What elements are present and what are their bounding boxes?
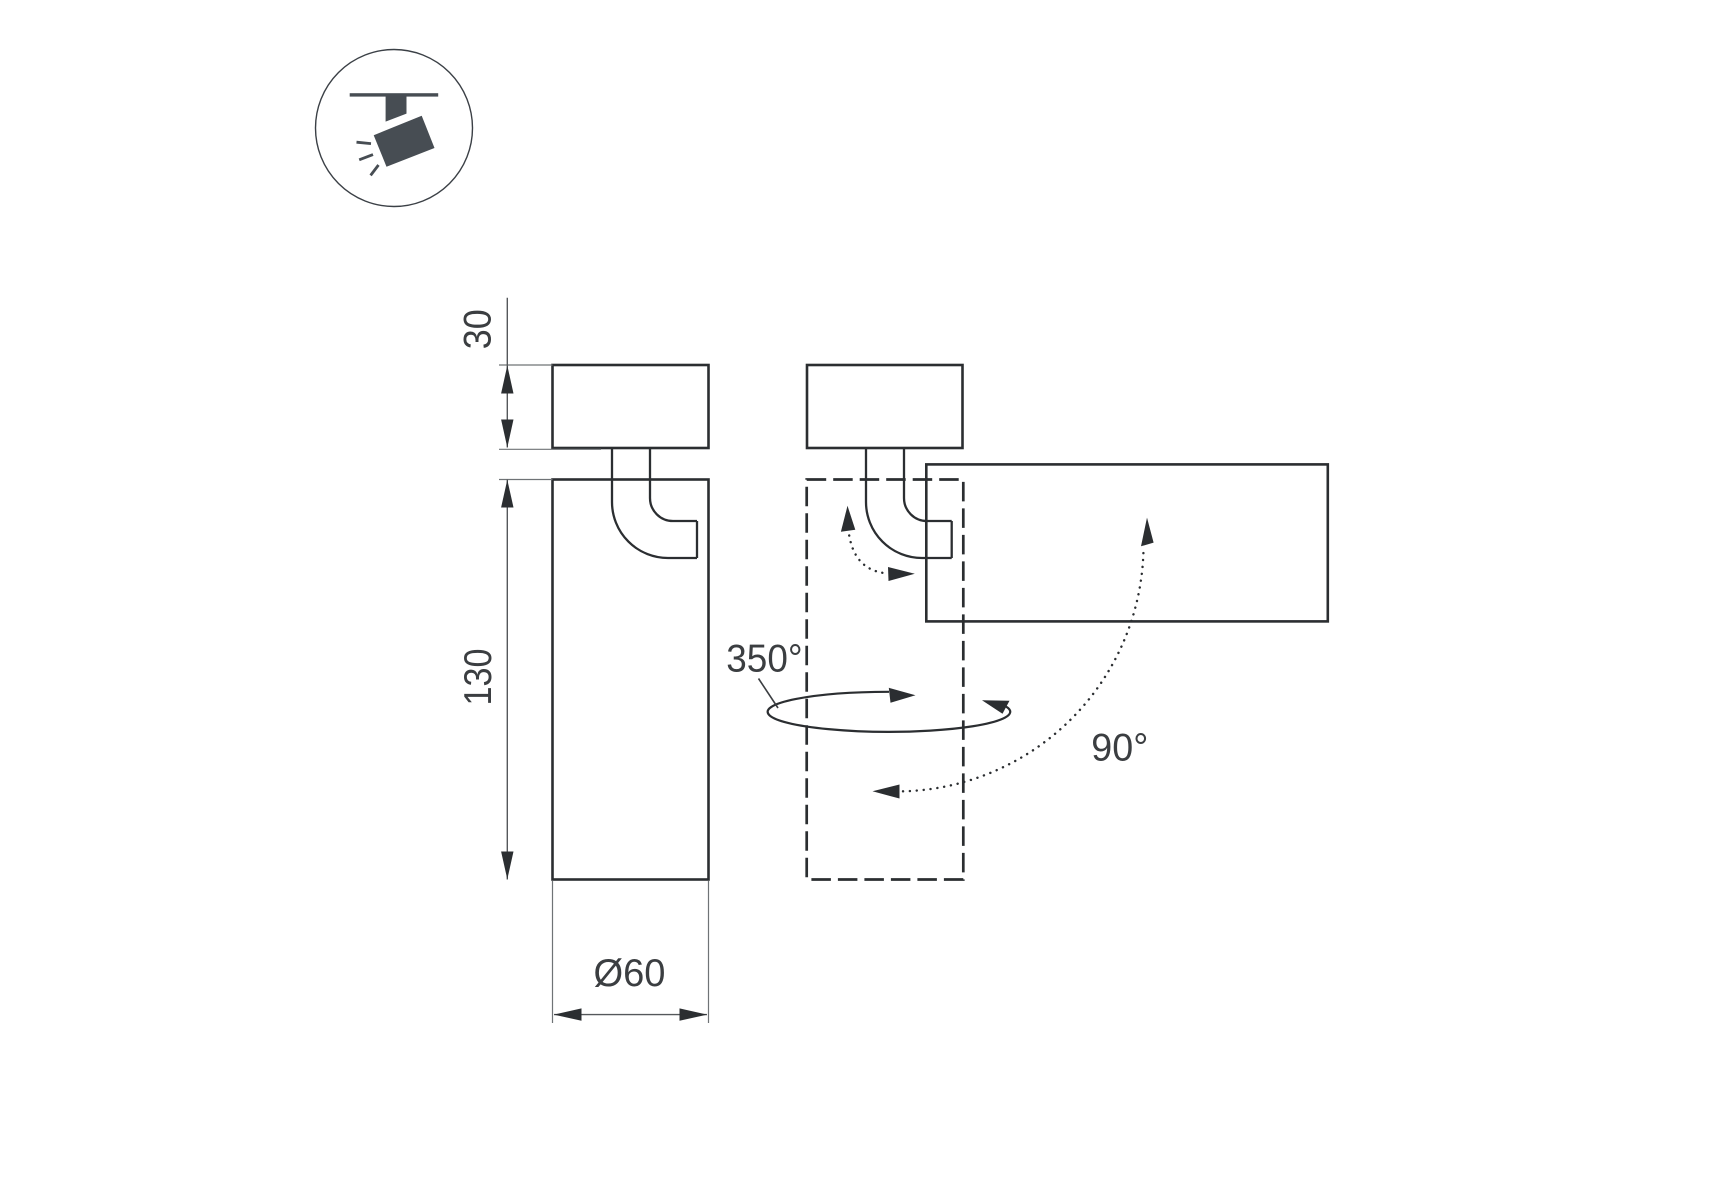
- svg-text:Ø60: Ø60: [594, 952, 666, 995]
- svg-text:90°: 90°: [1091, 727, 1148, 770]
- svg-text:130: 130: [457, 649, 500, 706]
- svg-text:350°: 350°: [726, 638, 802, 681]
- svg-text:30: 30: [457, 309, 500, 349]
